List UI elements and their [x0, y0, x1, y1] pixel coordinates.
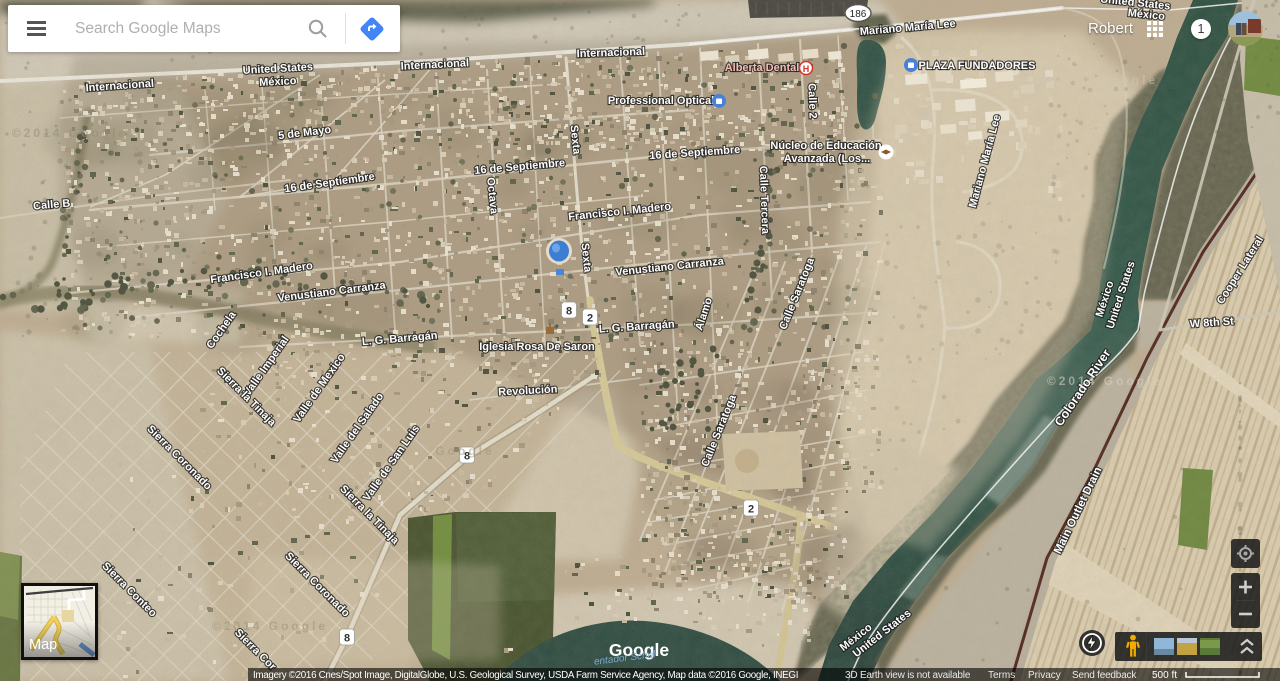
- svg-text:H: H: [803, 64, 810, 74]
- svg-text:©2014 Google: ©2014 Google: [1047, 374, 1163, 388]
- svg-text:8: 8: [344, 633, 350, 645]
- svg-text:2: 2: [587, 313, 593, 325]
- svg-text:8: 8: [566, 306, 572, 318]
- svg-text:©2014 Google: ©2014 Google: [12, 126, 128, 140]
- svg-text:México: México: [259, 75, 297, 89]
- svg-text:Map: Map: [29, 637, 57, 653]
- svg-text:Calle Tercera: Calle Tercera: [757, 166, 771, 236]
- svg-text:Iglesia Rosa De Saron: Iglesia Rosa De Saron: [479, 341, 595, 353]
- svg-text:Alberta Dental: Alberta Dental: [725, 62, 800, 74]
- svg-text:2: 2: [748, 504, 754, 516]
- svg-text:Avanzada (Los...: Avanzada (Los...: [784, 153, 870, 165]
- svg-text:Internacional: Internacional: [576, 46, 645, 60]
- svg-text:Núcleo de Educación: Núcleo de Educación: [770, 140, 882, 152]
- svg-text:Professional Optical: Professional Optical: [608, 95, 714, 107]
- svg-text:©2014 Google: ©2014 Google: [1042, 73, 1158, 87]
- svg-text:186: 186: [850, 9, 867, 20]
- svg-text:Google: Google: [435, 444, 494, 458]
- svg-text:Calle 2: Calle 2: [805, 83, 818, 119]
- svg-text:PLAZA FUNDADORES: PLAZA FUNDADORES: [919, 60, 1036, 72]
- svg-text:©2014 Google: ©2014 Google: [212, 619, 328, 633]
